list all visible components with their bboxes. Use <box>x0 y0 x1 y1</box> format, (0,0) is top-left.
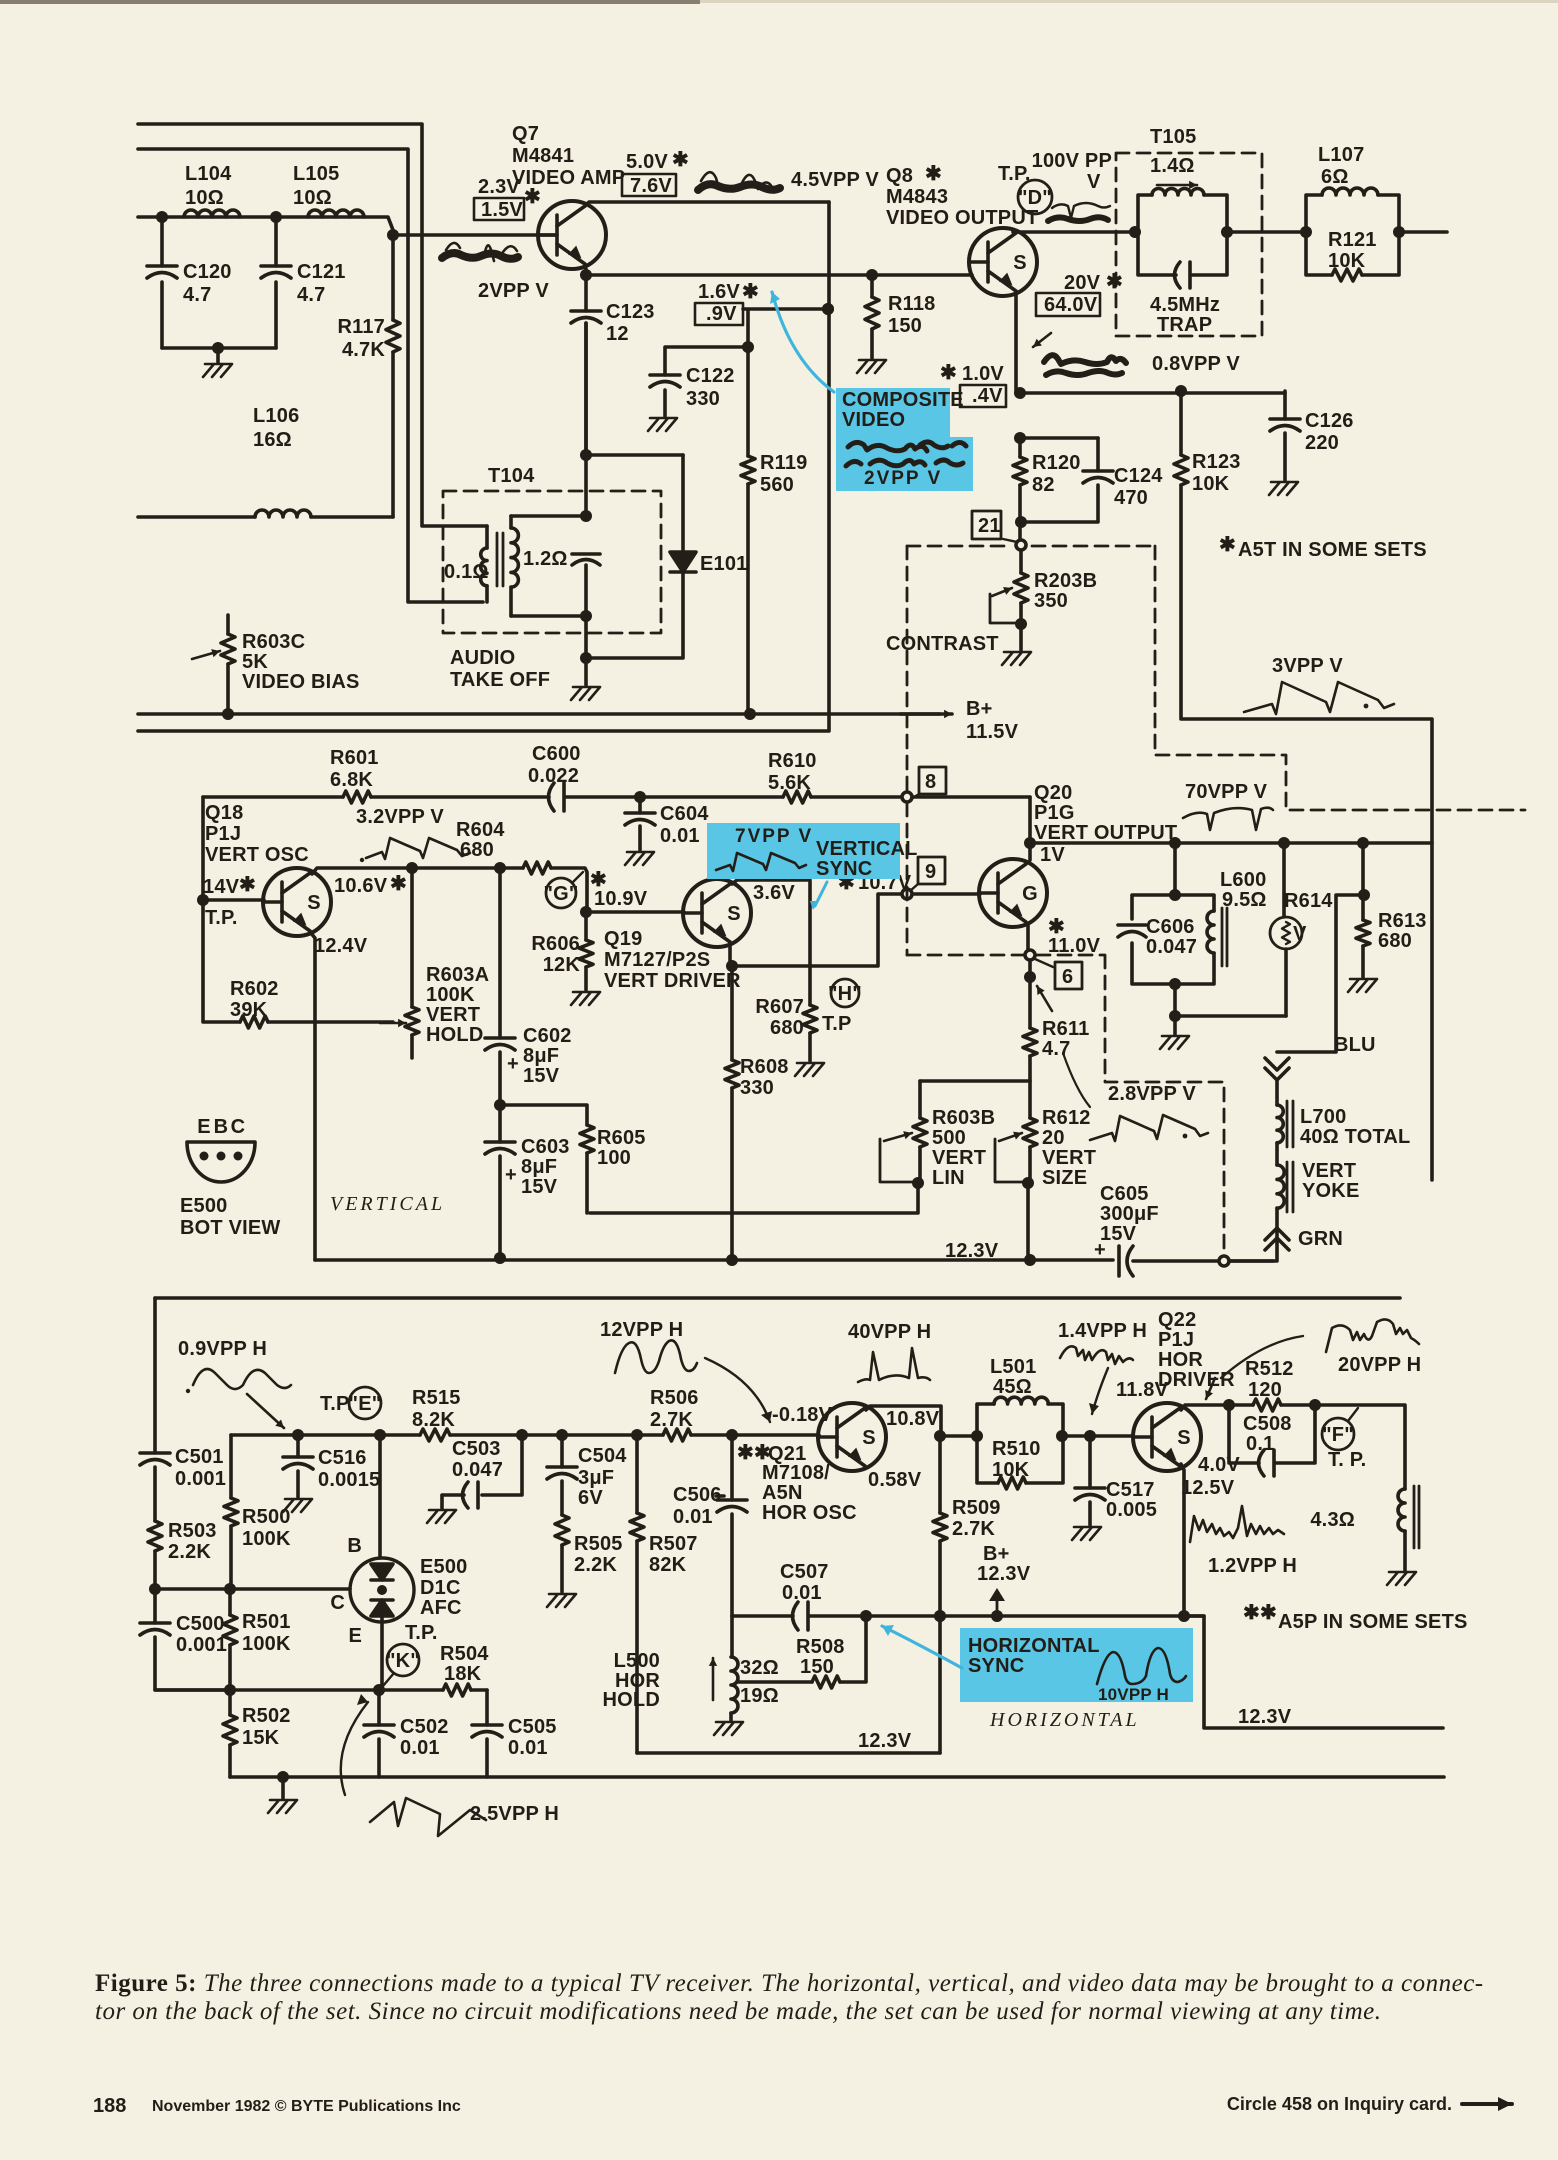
svg-text:0.01: 0.01 <box>508 1737 548 1759</box>
svg-text:L106: L106 <box>253 405 299 427</box>
svg-text:1.5V: 1.5V <box>481 199 523 221</box>
svg-text:G: G <box>1022 883 1038 905</box>
svg-text:C124: C124 <box>1114 465 1163 487</box>
svg-text:0.58V: 0.58V <box>868 1469 922 1491</box>
svg-text:5.6K: 5.6K <box>768 772 811 794</box>
svg-text:BOT VIEW: BOT VIEW <box>180 1217 281 1239</box>
svg-text:7VPP V: 7VPP V <box>735 826 813 847</box>
svg-text:330: 330 <box>740 1077 774 1099</box>
svg-text:4.7: 4.7 <box>183 284 211 306</box>
svg-text:"K": "K" <box>386 1650 420 1672</box>
svg-text:C517: C517 <box>1106 1479 1155 1501</box>
svg-text:T.P.: T.P. <box>405 1622 438 1644</box>
svg-text:4.7: 4.7 <box>1042 1038 1070 1060</box>
svg-text:VERT: VERT <box>1042 1147 1096 1169</box>
svg-text:20: 20 <box>1042 1127 1065 1149</box>
svg-text:10K: 10K <box>1192 473 1230 495</box>
svg-text:1.2VPP H: 1.2VPP H <box>1208 1555 1297 1577</box>
svg-text:9: 9 <box>925 861 936 883</box>
svg-text:8μF: 8μF <box>523 1045 559 1067</box>
svg-text:R203B: R203B <box>1034 570 1097 592</box>
svg-text:Circle 458 on Inquiry card.: Circle 458 on Inquiry card. <box>1227 2094 1452 2114</box>
svg-text:HOLD: HOLD <box>426 1024 483 1046</box>
svg-text:✱: ✱ <box>239 874 256 896</box>
svg-text:SYNC: SYNC <box>968 1655 1024 1677</box>
svg-text:S: S <box>1177 1427 1191 1449</box>
svg-text:P1J: P1J <box>205 823 241 845</box>
svg-text:39K: 39K <box>230 999 268 1021</box>
svg-text:B: B <box>214 1116 229 1138</box>
svg-text:100K: 100K <box>242 1633 291 1655</box>
svg-text:680: 680 <box>770 1017 804 1039</box>
svg-text:S: S <box>1013 252 1027 274</box>
svg-text:✱: ✱ <box>940 362 957 384</box>
svg-text:D1C: D1C <box>420 1577 461 1599</box>
svg-text:16Ω: 16Ω <box>253 429 292 451</box>
svg-text:2.7K: 2.7K <box>952 1518 995 1540</box>
svg-text:C502: C502 <box>400 1716 449 1738</box>
svg-text:8: 8 <box>925 771 936 793</box>
svg-text:0.001: 0.001 <box>176 1634 227 1656</box>
svg-text:+: + <box>507 1053 519 1075</box>
svg-text:C505: C505 <box>508 1716 557 1738</box>
svg-text:.9V: .9V <box>706 303 737 325</box>
svg-text:C120: C120 <box>183 261 232 283</box>
svg-text:100K: 100K <box>242 1528 291 1550</box>
svg-text:R118: R118 <box>888 293 936 315</box>
svg-text:+: + <box>505 1164 517 1186</box>
svg-text:0.047: 0.047 <box>452 1459 503 1481</box>
svg-text:R612: R612 <box>1042 1107 1091 1129</box>
svg-text:VERT: VERT <box>426 1004 480 1026</box>
svg-text:✱: ✱ <box>925 163 942 185</box>
svg-text:Q7: Q7 <box>512 123 539 145</box>
svg-text:C126: C126 <box>1305 410 1354 432</box>
svg-text:COMPOSITE: COMPOSITE <box>842 389 964 411</box>
svg-text:T.P: T.P <box>822 1013 852 1035</box>
svg-text:82: 82 <box>1032 474 1055 496</box>
svg-text:120: 120 <box>1248 1379 1282 1401</box>
svg-text:32Ω: 32Ω <box>740 1657 779 1679</box>
svg-text:L501: L501 <box>990 1356 1036 1378</box>
svg-text:C123: C123 <box>606 301 655 323</box>
svg-text:0.01: 0.01 <box>782 1582 822 1604</box>
svg-text:E: E <box>197 1116 211 1138</box>
svg-text:R610: R610 <box>768 750 817 772</box>
svg-text:2.2K: 2.2K <box>168 1541 211 1563</box>
svg-text:R603B: R603B <box>932 1107 995 1129</box>
svg-text:0.0015: 0.0015 <box>318 1469 380 1491</box>
svg-text:15V: 15V <box>521 1176 558 1198</box>
svg-text:A5T IN SOME SETS: A5T IN SOME SETS <box>1238 539 1427 561</box>
svg-text:YOKE: YOKE <box>1302 1180 1359 1202</box>
svg-text:Q19: Q19 <box>604 928 642 950</box>
svg-text:350: 350 <box>1034 590 1068 612</box>
svg-text:3VPP V: 3VPP V <box>1272 655 1343 677</box>
svg-text:2.3V: 2.3V <box>478 176 520 198</box>
svg-text:T104: T104 <box>488 465 535 487</box>
svg-text:2.5VPP H: 2.5VPP H <box>470 1803 559 1825</box>
svg-text:6V: 6V <box>578 1487 603 1509</box>
svg-text:C: C <box>330 1592 345 1614</box>
svg-text:0.1: 0.1 <box>1246 1433 1274 1455</box>
svg-text:M4843: M4843 <box>886 186 948 208</box>
svg-text:L104: L104 <box>185 163 232 185</box>
svg-text:6Ω: 6Ω <box>1321 166 1349 188</box>
svg-text:"E": "E" <box>349 1393 382 1415</box>
svg-text:SYNC: SYNC <box>816 858 872 880</box>
svg-text:R502: R502 <box>242 1705 291 1727</box>
svg-text:C606: C606 <box>1146 916 1195 938</box>
svg-text:R614: R614 <box>1284 890 1333 912</box>
svg-text:E: E <box>348 1625 362 1647</box>
svg-text:HORIZONTAL: HORIZONTAL <box>989 1709 1140 1731</box>
svg-text:8μF: 8μF <box>521 1156 557 1178</box>
svg-text:M7127/P2S: M7127/P2S <box>604 949 710 971</box>
svg-text:1.4Ω: 1.4Ω <box>1150 155 1195 177</box>
svg-text:✱: ✱ <box>672 149 689 171</box>
svg-text:"D": "D" <box>1018 187 1052 209</box>
svg-text:0.9VPP H: 0.9VPP H <box>178 1338 267 1360</box>
svg-text:300μF: 300μF <box>1100 1203 1159 1225</box>
svg-text:2VPP V: 2VPP V <box>478 280 549 302</box>
svg-text:0.022: 0.022 <box>528 765 579 787</box>
svg-text:HORIZONTAL: HORIZONTAL <box>968 1635 1100 1657</box>
svg-text:2.8VPP V: 2.8VPP V <box>1108 1083 1196 1105</box>
svg-text:M7108/: M7108/ <box>762 1462 830 1484</box>
svg-text:0.01: 0.01 <box>660 825 700 847</box>
svg-text:3.2VPP V: 3.2VPP V <box>356 806 444 828</box>
svg-text:150: 150 <box>800 1656 834 1678</box>
svg-text:12.3V: 12.3V <box>945 1240 999 1262</box>
svg-text:0.047: 0.047 <box>1146 936 1197 958</box>
svg-text:VERT: VERT <box>932 1147 986 1169</box>
svg-text:R603A: R603A <box>426 964 489 986</box>
svg-text:VERT OUTPUT: VERT OUTPUT <box>1034 822 1177 844</box>
svg-text:9.5Ω: 9.5Ω <box>1222 889 1267 911</box>
svg-text:LIN: LIN <box>932 1167 965 1189</box>
svg-text:1.2Ω: 1.2Ω <box>523 548 568 570</box>
svg-text:S: S <box>727 903 741 925</box>
svg-text:C602: C602 <box>523 1025 572 1047</box>
svg-text:11.5V: 11.5V <box>966 721 1019 743</box>
svg-text:2.7K: 2.7K <box>650 1409 693 1431</box>
svg-text:20VPP H: 20VPP H <box>1338 1354 1421 1376</box>
svg-text:-0.18V: -0.18V <box>772 1404 833 1426</box>
svg-text:R515: R515 <box>412 1387 461 1409</box>
svg-text:.4V: .4V <box>972 385 1003 407</box>
svg-text:14V: 14V <box>203 876 240 898</box>
svg-text:R510: R510 <box>992 1438 1041 1460</box>
svg-text:10Ω: 10Ω <box>293 187 332 209</box>
svg-text:VIDEO: VIDEO <box>842 409 905 431</box>
svg-text:V: V <box>1087 171 1101 193</box>
svg-text:Figure 5: The three connection: Figure 5: The three connections made to … <box>95 1970 1484 1997</box>
svg-text:HOR: HOR <box>1158 1349 1203 1371</box>
svg-text:12.3V: 12.3V <box>977 1563 1031 1585</box>
svg-text:✱: ✱ <box>1106 271 1123 293</box>
svg-text:12.3V: 12.3V <box>858 1730 912 1752</box>
svg-text:R121: R121 <box>1328 229 1377 251</box>
svg-text:10K: 10K <box>992 1459 1030 1481</box>
svg-text:10K: 10K <box>1328 250 1366 272</box>
svg-text:C: C <box>231 1116 246 1138</box>
svg-text:SIZE: SIZE <box>1042 1167 1087 1189</box>
svg-text:6: 6 <box>1062 966 1073 988</box>
svg-text:P1G: P1G <box>1034 802 1075 824</box>
svg-text:E500: E500 <box>180 1195 228 1217</box>
svg-text:R606: R606 <box>531 933 580 955</box>
svg-text:T105: T105 <box>1150 126 1196 148</box>
svg-text:220: 220 <box>1305 432 1339 454</box>
svg-text:B+: B+ <box>983 1543 1010 1565</box>
svg-text:21: 21 <box>978 515 1001 537</box>
svg-text:C507: C507 <box>780 1561 829 1583</box>
svg-text:3.6V: 3.6V <box>753 882 795 904</box>
svg-text:R500: R500 <box>242 1506 291 1528</box>
svg-text:R607: R607 <box>755 996 804 1018</box>
svg-text:R505: R505 <box>574 1533 623 1555</box>
svg-text:0.01: 0.01 <box>673 1506 713 1528</box>
svg-text:R508: R508 <box>796 1636 845 1658</box>
svg-text:✱: ✱ <box>1219 534 1236 556</box>
svg-text:M4841: M4841 <box>512 145 574 167</box>
svg-text:40VPP H: 40VPP H <box>848 1321 931 1343</box>
svg-text:12.5V: 12.5V <box>1181 1477 1235 1499</box>
svg-text:6.8K: 6.8K <box>330 769 373 791</box>
svg-text:4.7: 4.7 <box>297 284 325 306</box>
svg-text:0.8VPP V: 0.8VPP V <box>1152 353 1240 375</box>
svg-text:100K: 100K <box>426 984 475 1006</box>
svg-text:R603C: R603C <box>242 631 305 653</box>
svg-text:R604: R604 <box>456 819 505 841</box>
svg-text:15V: 15V <box>1100 1223 1137 1245</box>
svg-text:R503: R503 <box>168 1520 217 1542</box>
svg-text:10VPP H: 10VPP H <box>1098 1685 1169 1704</box>
svg-text:500: 500 <box>932 1127 966 1149</box>
svg-text:"H": "H" <box>828 983 862 1005</box>
svg-text:V: V <box>1293 923 1307 945</box>
svg-text:R506: R506 <box>650 1387 699 1409</box>
svg-text:A5P IN SOME SETS: A5P IN SOME SETS <box>1278 1611 1468 1633</box>
svg-text:1.0V: 1.0V <box>962 363 1004 385</box>
svg-text:4.7K: 4.7K <box>342 339 385 361</box>
svg-text:1V: 1V <box>1040 844 1065 866</box>
svg-text:✱✱: ✱✱ <box>737 1442 771 1464</box>
svg-text:11.0V: 11.0V <box>1048 935 1101 957</box>
svg-text:L600: L600 <box>1220 869 1266 891</box>
svg-text:Q20: Q20 <box>1034 782 1072 804</box>
svg-text:S: S <box>862 1427 876 1449</box>
svg-text:AFC: AFC <box>420 1597 462 1619</box>
svg-text:C500: C500 <box>176 1613 225 1635</box>
svg-text:TAKE OFF: TAKE OFF <box>450 669 550 691</box>
svg-text:C605: C605 <box>1100 1183 1149 1205</box>
svg-text:VIDEO OUTPUT: VIDEO OUTPUT <box>886 207 1038 229</box>
svg-text:680: 680 <box>460 839 494 861</box>
svg-text:VERTICAL: VERTICAL <box>330 1193 445 1215</box>
svg-text:tor on the back of the set. Si: tor on the back of the set. Since no cir… <box>95 1998 1382 2025</box>
svg-text:R119: R119 <box>760 452 808 474</box>
svg-text:470: 470 <box>1114 487 1148 509</box>
svg-text:B: B <box>347 1535 362 1557</box>
svg-text:✱: ✱ <box>742 281 759 303</box>
svg-text:7.6V: 7.6V <box>630 175 672 197</box>
svg-text:"G": "G" <box>543 883 578 905</box>
svg-text:15V: 15V <box>523 1065 560 1087</box>
svg-text:19Ω: 19Ω <box>740 1685 779 1707</box>
svg-text:VERT: VERT <box>1302 1160 1356 1182</box>
svg-text:R613: R613 <box>1378 910 1427 932</box>
svg-text:L107: L107 <box>1318 144 1364 166</box>
svg-text:12.3V: 12.3V <box>1238 1706 1292 1728</box>
svg-text:R117: R117 <box>337 316 385 338</box>
svg-text:1.4VPP H: 1.4VPP H <box>1058 1320 1147 1342</box>
svg-text:C122: C122 <box>686 365 735 387</box>
svg-text:20V: 20V <box>1064 272 1101 294</box>
svg-text:HOR OSC: HOR OSC <box>762 1502 857 1524</box>
svg-text:10.6V: 10.6V <box>334 875 388 897</box>
svg-text:DRIVER: DRIVER <box>1158 1369 1235 1391</box>
svg-text:C121: C121 <box>297 261 346 283</box>
svg-text:1.6V: 1.6V <box>698 281 740 303</box>
svg-text:0.001: 0.001 <box>175 1468 226 1490</box>
svg-text:82K: 82K <box>649 1554 687 1576</box>
svg-text:12: 12 <box>606 323 629 345</box>
svg-text:TRAP: TRAP <box>1157 314 1212 336</box>
svg-text:VERT OSC: VERT OSC <box>205 844 309 866</box>
svg-text:C516: C516 <box>318 1447 367 1469</box>
svg-text:2VPP V: 2VPP V <box>864 468 942 489</box>
svg-text:12K: 12K <box>543 954 581 976</box>
svg-text:VERT DRIVER: VERT DRIVER <box>604 970 741 992</box>
svg-text:0.005: 0.005 <box>1106 1499 1157 1521</box>
svg-text:R602: R602 <box>230 978 279 1000</box>
svg-text:C600: C600 <box>532 743 581 765</box>
svg-text:✱: ✱ <box>524 186 541 208</box>
svg-text:C506: C506 <box>673 1484 722 1506</box>
svg-text:C603: C603 <box>521 1136 570 1158</box>
svg-text:T.P.: T.P. <box>205 907 238 929</box>
svg-text:L700: L700 <box>1300 1106 1346 1128</box>
svg-text:150: 150 <box>888 315 922 337</box>
svg-text:R601: R601 <box>330 747 379 769</box>
svg-text:100: 100 <box>597 1147 631 1169</box>
svg-text:AUDIO: AUDIO <box>450 647 515 669</box>
svg-text:C504: C504 <box>578 1445 627 1467</box>
svg-text:C501: C501 <box>175 1446 224 1468</box>
svg-text:R611: R611 <box>1042 1018 1090 1040</box>
svg-text:GRN: GRN <box>1298 1228 1343 1250</box>
svg-text:C604: C604 <box>660 803 709 825</box>
svg-text:70VPP V: 70VPP V <box>1185 781 1268 803</box>
svg-text:10.8V: 10.8V <box>886 1408 940 1430</box>
svg-text:R504: R504 <box>440 1643 489 1665</box>
svg-text:15K: 15K <box>242 1727 280 1749</box>
svg-text:BLU: BLU <box>1334 1034 1376 1056</box>
svg-text:P1J: P1J <box>1158 1329 1194 1351</box>
svg-text:560: 560 <box>760 474 794 496</box>
svg-text:40Ω TOTAL: 40Ω TOTAL <box>1300 1126 1410 1148</box>
svg-text:S: S <box>307 892 321 914</box>
svg-text:45Ω: 45Ω <box>993 1376 1032 1398</box>
svg-text:10.9V: 10.9V <box>594 888 648 910</box>
svg-text:C503: C503 <box>452 1438 501 1460</box>
svg-text:E500: E500 <box>420 1556 468 1578</box>
svg-text:2.2K: 2.2K <box>574 1554 617 1576</box>
svg-text:B+: B+ <box>966 698 993 720</box>
svg-text:L105: L105 <box>293 163 339 185</box>
svg-text:188: 188 <box>93 2095 126 2117</box>
svg-text:L500: L500 <box>614 1650 660 1672</box>
svg-text:C508: C508 <box>1243 1413 1292 1435</box>
svg-text:4.3Ω: 4.3Ω <box>1310 1509 1355 1531</box>
svg-text:Q18: Q18 <box>205 802 243 824</box>
svg-text:R512: R512 <box>1245 1358 1294 1380</box>
svg-text:5.0V: 5.0V <box>626 151 668 173</box>
svg-text:VIDEO BIAS: VIDEO BIAS <box>242 671 360 693</box>
svg-text:100V PP: 100V PP <box>1032 150 1112 172</box>
svg-text:✱: ✱ <box>390 873 407 895</box>
svg-text:R501: R501 <box>242 1611 291 1633</box>
svg-text:"F": "F" <box>1322 1424 1354 1446</box>
svg-text:4.0V: 4.0V <box>1198 1454 1240 1476</box>
svg-text:18K: 18K <box>444 1663 482 1685</box>
svg-text:November 1982 © BYTE Publicati: November 1982 © BYTE Publications Inc <box>152 2098 461 2115</box>
svg-text:Q8: Q8 <box>886 165 913 187</box>
svg-text:CONTRAST: CONTRAST <box>886 633 999 655</box>
svg-text:T. P.: T. P. <box>1328 1449 1366 1471</box>
svg-text:R120: R120 <box>1032 452 1081 474</box>
svg-text:8.2K: 8.2K <box>412 1409 455 1431</box>
svg-text:3μF: 3μF <box>578 1467 614 1489</box>
svg-text:HOLD: HOLD <box>603 1689 660 1711</box>
svg-text:VERTICAL: VERTICAL <box>816 838 918 860</box>
svg-text:R509: R509 <box>952 1497 1001 1519</box>
svg-text:R123: R123 <box>1192 451 1241 473</box>
svg-text:A5N: A5N <box>762 1482 803 1504</box>
svg-text:5K: 5K <box>242 651 268 673</box>
svg-text:0.01: 0.01 <box>400 1737 440 1759</box>
svg-text:4.5MHz: 4.5MHz <box>1150 294 1220 316</box>
svg-text:R605: R605 <box>597 1127 646 1149</box>
svg-text:R507: R507 <box>649 1533 698 1555</box>
svg-text:680: 680 <box>1378 930 1412 952</box>
svg-text:R608: R608 <box>740 1056 789 1078</box>
svg-text:10Ω: 10Ω <box>185 187 224 209</box>
svg-text:4.5VPP V: 4.5VPP V <box>791 169 879 191</box>
svg-text:E101: E101 <box>700 553 748 575</box>
svg-text:12.4V: 12.4V <box>314 935 368 957</box>
svg-text:330: 330 <box>686 388 720 410</box>
svg-text:Q22: Q22 <box>1158 1309 1196 1331</box>
svg-text:0.1Ω: 0.1Ω <box>444 561 489 583</box>
svg-text:12VPP H: 12VPP H <box>600 1319 683 1341</box>
svg-text:✱✱: ✱✱ <box>1243 1602 1277 1624</box>
svg-text:64.0V: 64.0V <box>1044 294 1098 316</box>
